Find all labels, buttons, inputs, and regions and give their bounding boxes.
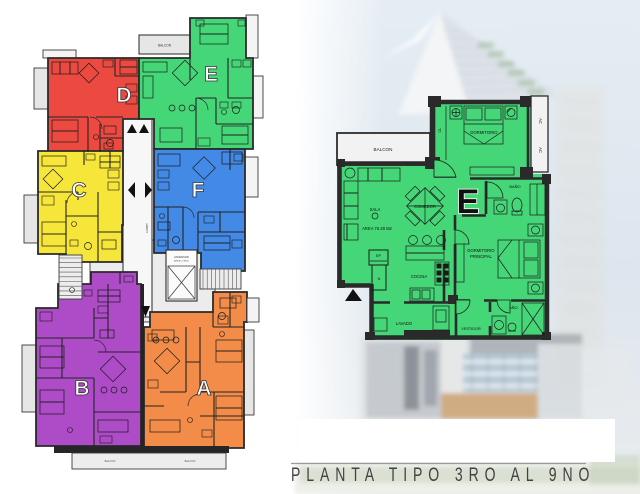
svg-text:E: E	[457, 183, 480, 221]
svg-text:E: E	[204, 63, 218, 86]
svg-text:PRINCIPAL: PRINCIPAL	[470, 254, 492, 259]
svg-text:ASCENSOR: ASCENSOR	[174, 255, 189, 259]
svg-text:F: F	[192, 179, 205, 202]
svg-text:LAVADO: LAVADO	[396, 321, 413, 326]
svg-text:BALCON: BALCON	[158, 44, 172, 48]
svg-text:AC: AC	[538, 118, 543, 124]
svg-text:DORMITORIO: DORMITORIO	[470, 130, 498, 135]
svg-text:EP: EP	[376, 254, 382, 258]
svg-text:C: C	[71, 179, 86, 202]
svg-text:N: N	[378, 277, 381, 281]
svg-text:PLANTA TIPO 3RO AL 9NO: PLANTA TIPO 3RO AL 9NO	[291, 464, 595, 486]
svg-text:A: A	[196, 377, 211, 400]
svg-text:BAÑO: BAÑO	[509, 184, 520, 189]
svg-text:D: D	[116, 84, 131, 107]
svg-text:AREA 76.28 M2: AREA 76.28 M2	[362, 226, 392, 231]
svg-text:AREA COMUN: AREA COMUN	[174, 260, 189, 263]
svg-text:B: B	[74, 377, 89, 400]
svg-text:DORMITORIO: DORMITORIO	[467, 248, 495, 253]
svg-text:BALCON: BALCON	[374, 147, 393, 152]
svg-text:BALCON: BALCON	[105, 459, 116, 463]
svg-text:COCINA: COCINA	[411, 274, 427, 279]
svg-text:BALCON: BALCON	[185, 459, 196, 463]
svg-text:COMEDOR: COMEDOR	[414, 204, 436, 209]
svg-text:AC: AC	[538, 147, 543, 153]
svg-text:CL: CL	[438, 128, 442, 133]
svg-text:LOBBY: LOBBY	[145, 223, 149, 233]
svg-text:SALA: SALA	[370, 207, 381, 212]
svg-text:VESTIDOR: VESTIDOR	[461, 327, 481, 331]
